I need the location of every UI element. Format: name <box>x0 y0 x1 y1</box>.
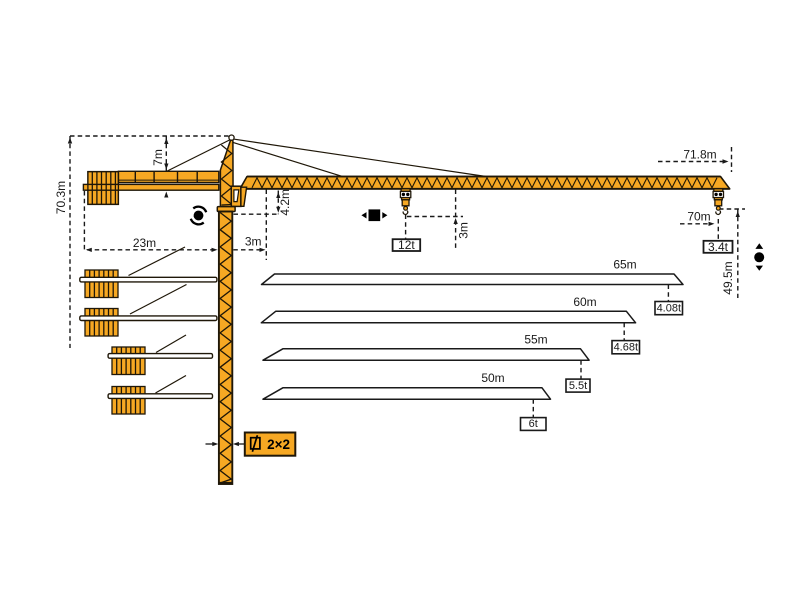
svg-text:55m: 55m <box>524 333 547 347</box>
svg-text:71.8m: 71.8m <box>683 148 716 162</box>
svg-text:3m: 3m <box>245 234 262 248</box>
svg-text:60m: 60m <box>573 295 596 309</box>
svg-text:3.4t: 3.4t <box>708 240 729 254</box>
svg-text:65m: 65m <box>613 258 636 272</box>
svg-text:4.2m: 4.2m <box>278 189 292 216</box>
svg-text:23m: 23m <box>133 236 156 250</box>
svg-text:2×2: 2×2 <box>267 437 290 452</box>
svg-text:6t: 6t <box>529 418 538 430</box>
svg-text:4.68t: 4.68t <box>614 342 638 354</box>
svg-text:5.5t: 5.5t <box>569 380 587 392</box>
svg-text:7m: 7m <box>151 149 165 166</box>
svg-text:3m: 3m <box>457 222 471 239</box>
svg-text:70m: 70m <box>687 210 710 224</box>
svg-text:12t: 12t <box>398 238 415 252</box>
svg-text:4.08t: 4.08t <box>657 303 681 315</box>
svg-text:50m: 50m <box>481 371 504 385</box>
svg-text:49.5m: 49.5m <box>721 261 735 294</box>
svg-text:70.3m: 70.3m <box>54 181 68 214</box>
